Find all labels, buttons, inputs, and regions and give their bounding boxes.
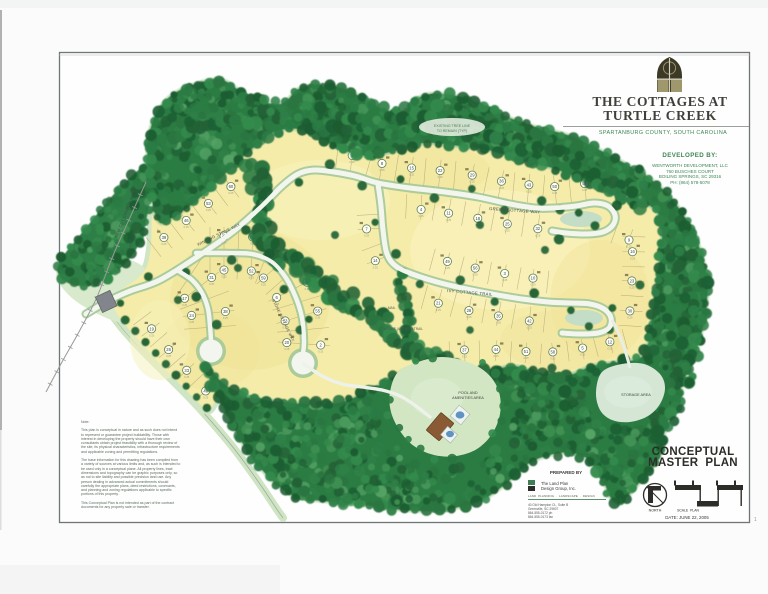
svg-text:0.25: 0.25 bbox=[350, 160, 356, 164]
svg-text:14: 14 bbox=[373, 258, 378, 263]
svg-text:0.25: 0.25 bbox=[184, 375, 190, 379]
svg-text:15: 15 bbox=[409, 166, 414, 171]
svg-text:25: 25 bbox=[505, 221, 510, 226]
svg-text:20: 20 bbox=[284, 340, 289, 345]
svg-text:0.25: 0.25 bbox=[552, 191, 558, 195]
svg-text:0.25: 0.25 bbox=[580, 353, 586, 357]
svg-text:0.25: 0.25 bbox=[627, 316, 633, 320]
svg-text:0.25: 0.25 bbox=[502, 278, 508, 282]
svg-text:0.25: 0.25 bbox=[203, 396, 209, 400]
svg-text:0.25: 0.25 bbox=[379, 168, 385, 172]
svg-text:0.25: 0.25 bbox=[630, 256, 636, 260]
svg-text:NATURE (AMENITY) TRAIL: NATURE (AMENITY) TRAIL bbox=[383, 327, 423, 331]
svg-text:36: 36 bbox=[499, 179, 504, 184]
svg-text:0.25: 0.25 bbox=[223, 316, 229, 320]
svg-text:POOL AND: POOL AND bbox=[458, 391, 478, 395]
svg-text:0.25: 0.25 bbox=[189, 320, 195, 324]
svg-text:0.25: 0.25 bbox=[530, 283, 536, 287]
svg-text:0.25: 0.25 bbox=[373, 265, 379, 269]
svg-text:0.25: 0.25 bbox=[284, 347, 290, 351]
svg-text:0.25: 0.25 bbox=[445, 266, 451, 270]
svg-text:AMENITIES AREA: AMENITIES AREA bbox=[452, 396, 484, 400]
svg-text:0.25: 0.25 bbox=[318, 350, 324, 354]
svg-text:0.25: 0.25 bbox=[470, 180, 476, 184]
svg-text:0.25: 0.25 bbox=[462, 355, 468, 359]
svg-text:23: 23 bbox=[630, 278, 635, 283]
svg-text:50: 50 bbox=[552, 184, 557, 189]
svg-text:0.25: 0.25 bbox=[249, 276, 255, 280]
svg-text:60: 60 bbox=[229, 184, 234, 189]
svg-text:0.25: 0.25 bbox=[499, 186, 505, 190]
svg-text:0.25: 0.25 bbox=[364, 234, 370, 238]
svg-text:12: 12 bbox=[608, 339, 613, 344]
svg-text:MAIL: MAIL bbox=[388, 306, 396, 310]
svg-text:44: 44 bbox=[494, 347, 499, 352]
svg-text:0.25: 0.25 bbox=[493, 354, 499, 358]
svg-text:EXISTING TREE LINE: EXISTING TREE LINE bbox=[434, 124, 471, 128]
svg-text:11: 11 bbox=[446, 211, 451, 216]
svg-text:18: 18 bbox=[475, 216, 480, 221]
svg-text:0.25: 0.25 bbox=[527, 326, 533, 330]
svg-text:56: 56 bbox=[473, 266, 478, 271]
svg-text:0.25: 0.25 bbox=[206, 208, 212, 212]
svg-text:0.25: 0.25 bbox=[419, 214, 425, 218]
svg-text:0.25: 0.25 bbox=[582, 188, 588, 192]
svg-text:51: 51 bbox=[524, 349, 529, 354]
svg-text:0.25: 0.25 bbox=[535, 233, 541, 237]
svg-text:0.25: 0.25 bbox=[629, 286, 635, 290]
svg-text:0.25: 0.25 bbox=[166, 354, 172, 358]
svg-text:38: 38 bbox=[223, 309, 228, 314]
svg-text:0.25: 0.25 bbox=[446, 218, 452, 222]
svg-text:0.25: 0.25 bbox=[184, 225, 190, 229]
svg-text:45: 45 bbox=[222, 268, 227, 273]
svg-text:0.25: 0.25 bbox=[607, 346, 613, 350]
svg-text:29: 29 bbox=[470, 173, 475, 178]
svg-text:26: 26 bbox=[166, 347, 171, 352]
svg-text:0.25: 0.25 bbox=[149, 333, 155, 337]
svg-text:46: 46 bbox=[184, 218, 189, 223]
svg-text:SCALE PLAN: SCALE PLAN bbox=[677, 509, 699, 513]
svg-text:35: 35 bbox=[496, 314, 501, 319]
svg-text:28: 28 bbox=[467, 308, 472, 313]
svg-text:0.25: 0.25 bbox=[523, 356, 529, 360]
svg-text:0.25: 0.25 bbox=[315, 316, 321, 320]
svg-text:17: 17 bbox=[182, 296, 187, 301]
svg-text:0.25: 0.25 bbox=[261, 283, 267, 287]
svg-text:0.25: 0.25 bbox=[161, 242, 167, 246]
svg-text:52: 52 bbox=[249, 269, 254, 274]
svg-text:0.25: 0.25 bbox=[496, 321, 502, 325]
svg-text:1: 1 bbox=[754, 517, 757, 523]
svg-text:0.25: 0.25 bbox=[526, 189, 532, 193]
svg-text:24: 24 bbox=[189, 313, 194, 318]
svg-text:55: 55 bbox=[315, 309, 320, 314]
svg-text:22: 22 bbox=[438, 168, 443, 173]
svg-text:43: 43 bbox=[527, 182, 532, 187]
svg-text:0.25: 0.25 bbox=[466, 315, 472, 319]
svg-text:21: 21 bbox=[436, 301, 441, 306]
svg-text:42: 42 bbox=[527, 318, 532, 323]
svg-text:0.25: 0.25 bbox=[436, 308, 442, 312]
svg-text:0.25: 0.25 bbox=[505, 229, 511, 233]
svg-text:59: 59 bbox=[261, 276, 266, 281]
svg-text:0.25: 0.25 bbox=[438, 175, 444, 179]
svg-text:31: 31 bbox=[209, 275, 214, 280]
svg-text:19: 19 bbox=[149, 326, 154, 331]
svg-text:33: 33 bbox=[184, 368, 189, 373]
svg-text:58: 58 bbox=[550, 349, 555, 354]
svg-text:TO REMAIN (TYP): TO REMAIN (TYP) bbox=[437, 129, 467, 133]
svg-text:0.25: 0.25 bbox=[550, 357, 556, 361]
svg-text:0.25: 0.25 bbox=[209, 282, 215, 286]
svg-text:30: 30 bbox=[628, 308, 633, 313]
svg-text:32: 32 bbox=[535, 226, 540, 231]
svg-text:0.25: 0.25 bbox=[228, 191, 234, 195]
svg-text:0.25: 0.25 bbox=[409, 173, 415, 177]
svg-text:0.25: 0.25 bbox=[182, 303, 188, 307]
svg-text:10: 10 bbox=[531, 276, 536, 281]
svg-text:49: 49 bbox=[445, 259, 450, 264]
svg-text:0.25: 0.25 bbox=[221, 275, 227, 279]
svg-text:0.25: 0.25 bbox=[473, 273, 479, 277]
svg-text:STORAGE AREA: STORAGE AREA bbox=[621, 393, 651, 397]
svg-text:37: 37 bbox=[462, 347, 467, 352]
svg-text:16: 16 bbox=[630, 249, 635, 254]
svg-text:39: 39 bbox=[162, 235, 167, 240]
svg-text:NORTH: NORTH bbox=[649, 509, 662, 513]
svg-text:53: 53 bbox=[206, 201, 211, 206]
